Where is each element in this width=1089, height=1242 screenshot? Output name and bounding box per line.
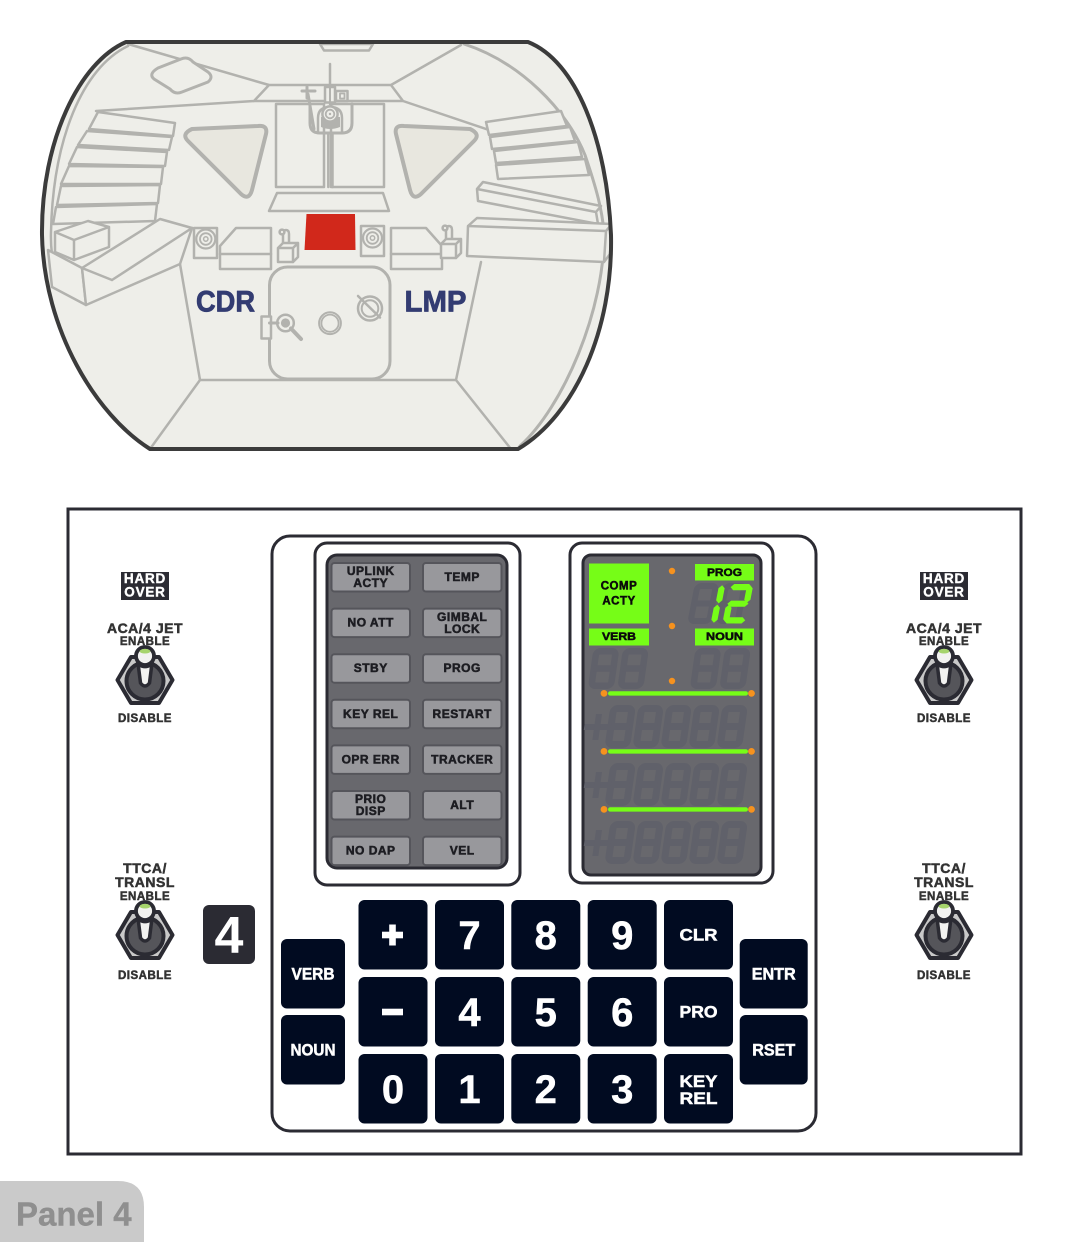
svg-text:TRANSL: TRANSL <box>914 874 974 890</box>
svg-text:LOCK: LOCK <box>444 622 480 636</box>
svg-text:CLR: CLR <box>680 927 718 945</box>
svg-text:TRACKER: TRACKER <box>431 752 493 766</box>
svg-text:VERB: VERB <box>602 631 636 643</box>
svg-text:5: 5 <box>535 991 557 1035</box>
svg-text:DISP: DISP <box>356 804 386 818</box>
svg-text:TEMP: TEMP <box>445 570 480 584</box>
svg-text:LMP: LMP <box>405 286 467 319</box>
svg-text:ACTY: ACTY <box>353 576 388 590</box>
svg-text:2: 2 <box>535 1068 557 1112</box>
svg-text:ALT: ALT <box>450 798 474 812</box>
svg-text:8: 8 <box>535 914 557 958</box>
svg-text:KEY: KEY <box>680 1073 718 1091</box>
svg-text:OVER: OVER <box>923 585 964 600</box>
svg-text:COMP: COMP <box>601 581 638 593</box>
svg-text:VERB: VERB <box>292 966 335 984</box>
svg-text:ACTY: ACTY <box>602 596 635 608</box>
svg-text:RESTART: RESTART <box>433 707 492 721</box>
svg-text:PRO: PRO <box>680 1004 718 1022</box>
svg-text:ENTR: ENTR <box>752 966 796 984</box>
svg-text:VEL: VEL <box>450 844 475 858</box>
svg-text:ACA/4 JET: ACA/4 JET <box>107 620 183 636</box>
svg-text:0: 0 <box>382 1068 404 1112</box>
svg-text:DISABLE: DISABLE <box>917 713 971 725</box>
svg-text:STBY: STBY <box>354 661 388 675</box>
svg-text:6: 6 <box>611 991 633 1035</box>
svg-text:RSET: RSET <box>752 1042 795 1060</box>
svg-text:TRANSL: TRANSL <box>115 874 175 890</box>
svg-text:PROG: PROG <box>444 661 481 675</box>
svg-text:ACA/4 JET: ACA/4 JET <box>906 620 982 636</box>
svg-text:4: 4 <box>215 907 244 965</box>
svg-text:NO DAP: NO DAP <box>346 844 396 858</box>
svg-text:OPR ERR: OPR ERR <box>342 752 400 766</box>
svg-text:4: 4 <box>458 991 481 1035</box>
svg-text:REL: REL <box>680 1090 718 1108</box>
svg-text:3: 3 <box>611 1068 633 1112</box>
svg-text:DISABLE: DISABLE <box>118 970 172 982</box>
svg-text:NO ATT: NO ATT <box>348 616 394 630</box>
svg-text:NOUN: NOUN <box>291 1042 336 1060</box>
svg-text:CDR: CDR <box>196 286 255 319</box>
svg-text:Panel 4: Panel 4 <box>16 1196 132 1233</box>
svg-text:OVER: OVER <box>124 585 165 600</box>
svg-text:DISABLE: DISABLE <box>118 713 172 725</box>
svg-text:9: 9 <box>611 914 633 958</box>
svg-text:NOUN: NOUN <box>706 631 743 643</box>
svg-text:1: 1 <box>458 1068 480 1112</box>
svg-text:KEY REL: KEY REL <box>343 707 398 721</box>
svg-text:DISABLE: DISABLE <box>917 970 971 982</box>
svg-text:PROG: PROG <box>707 567 742 579</box>
svg-text:7: 7 <box>458 914 480 958</box>
